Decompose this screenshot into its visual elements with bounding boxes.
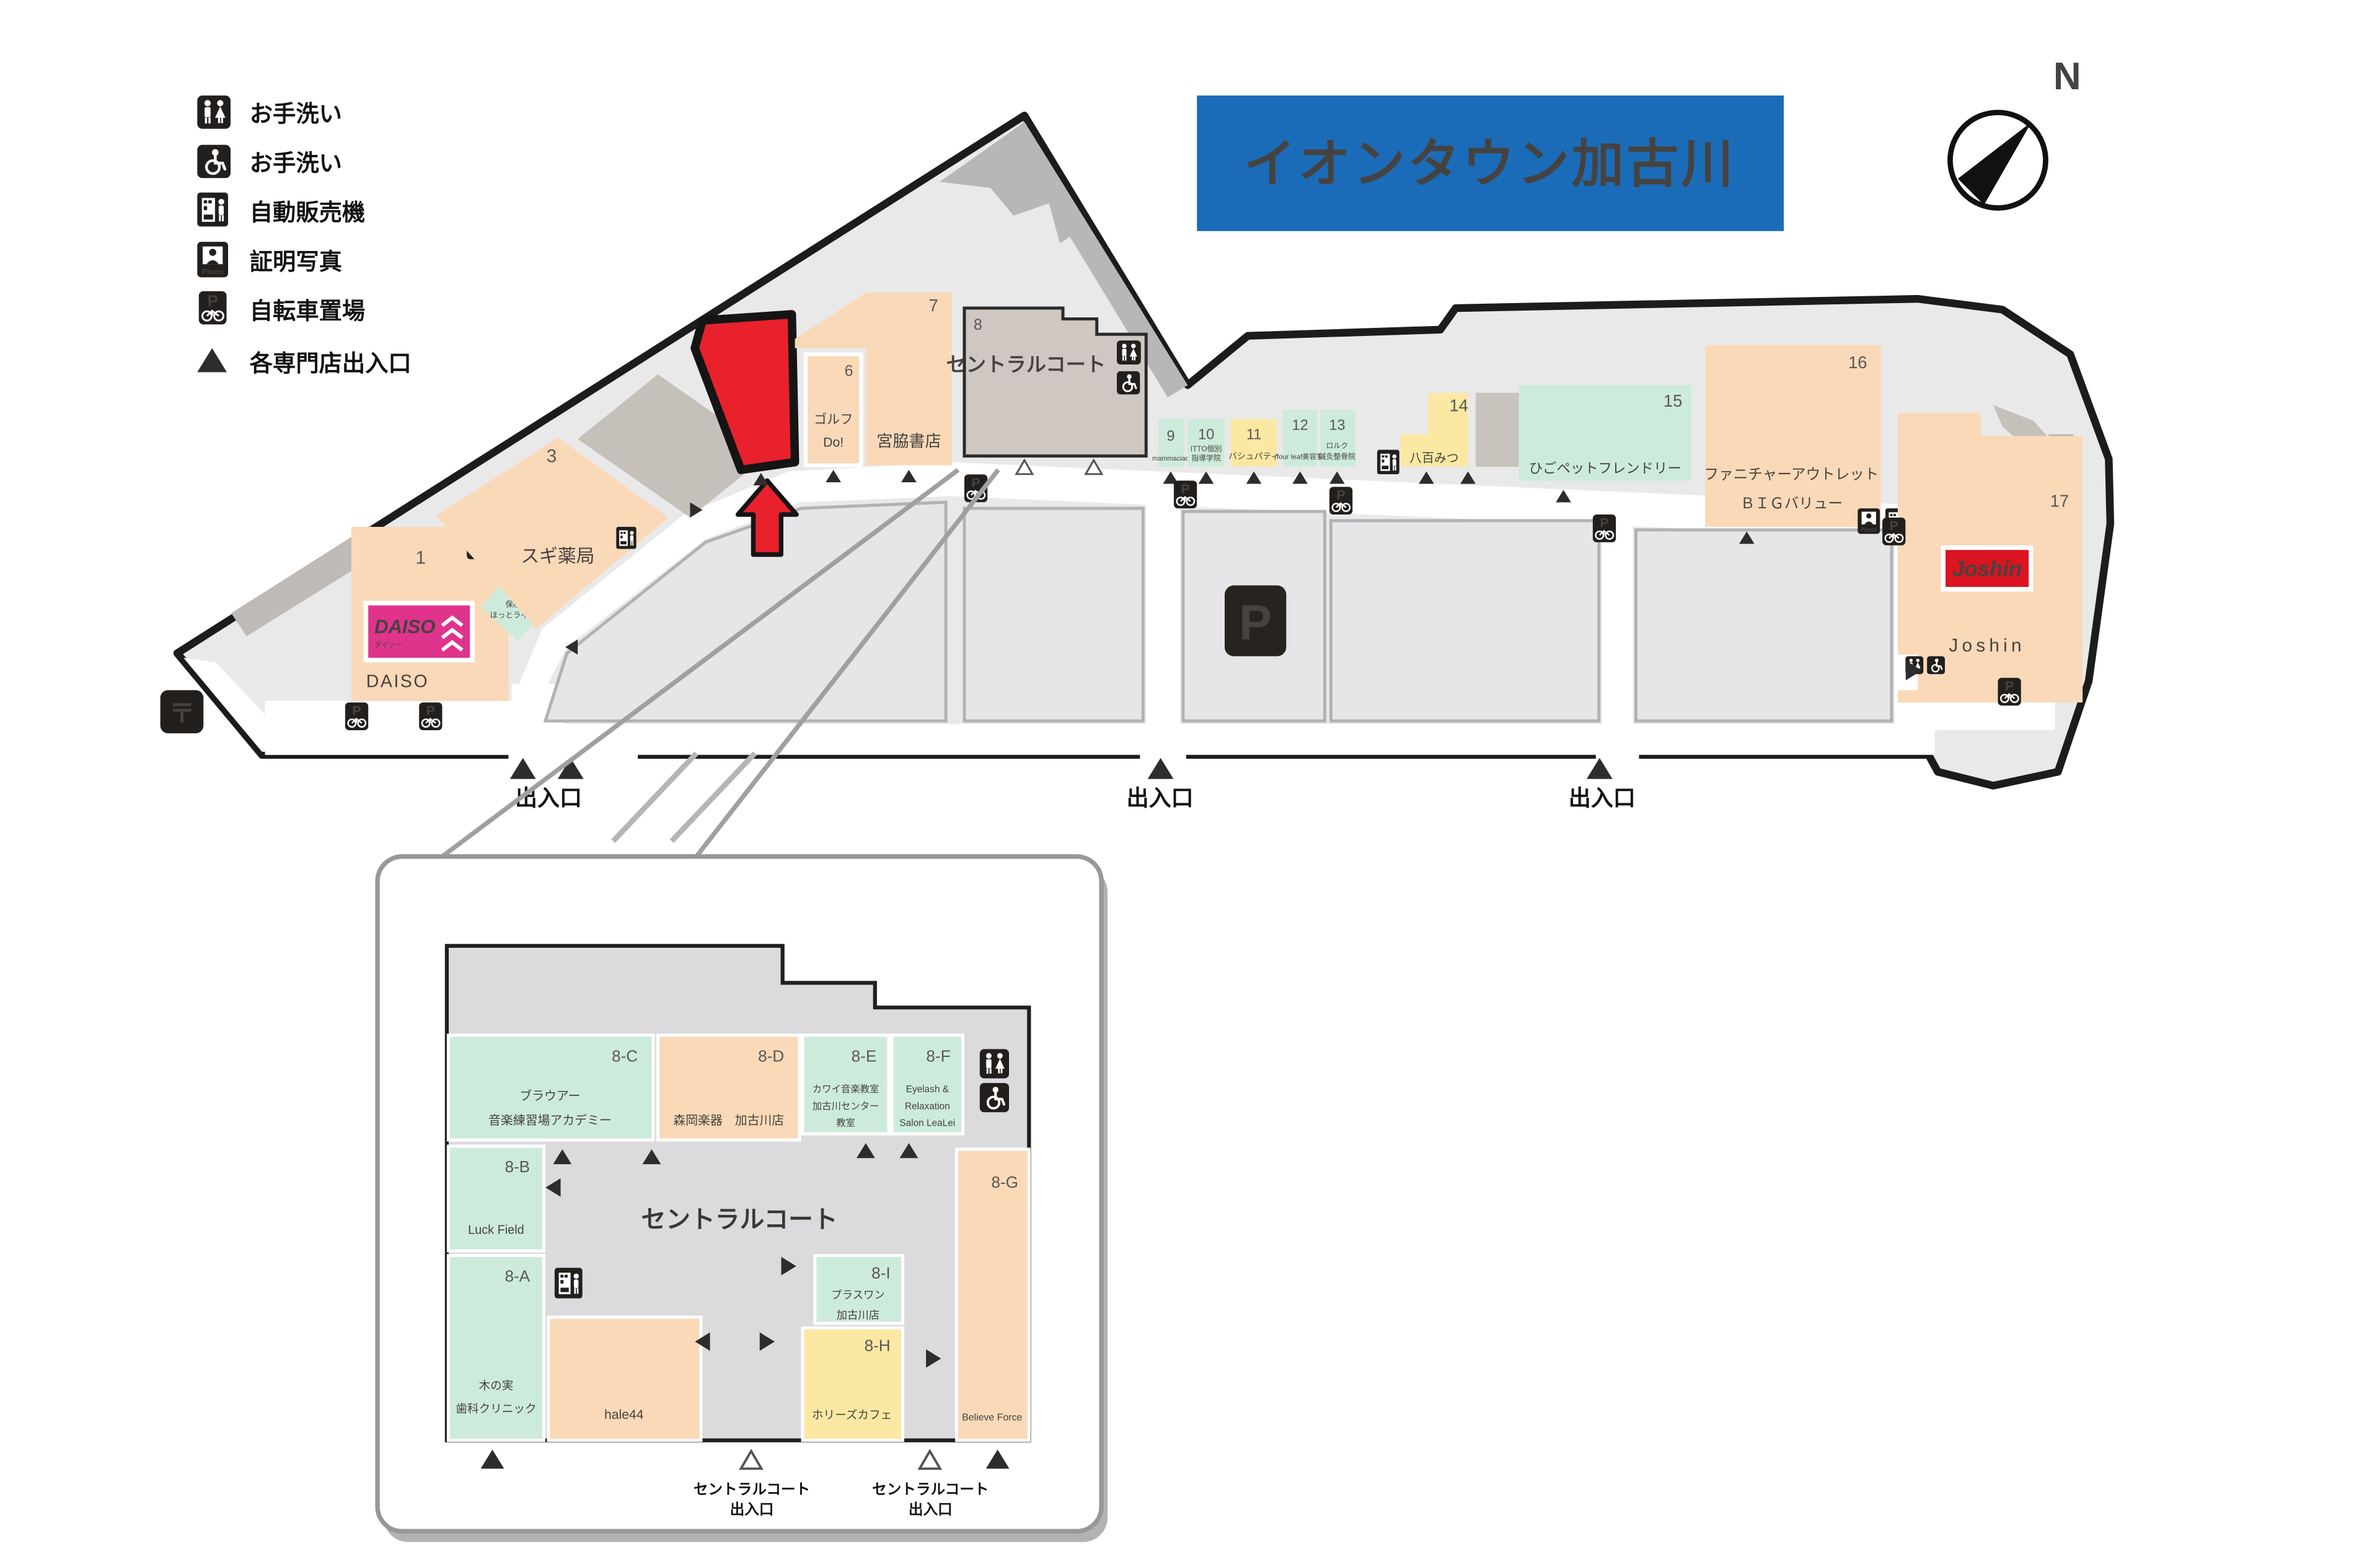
svg-text:mammaciao: mammaciao (1152, 455, 1189, 462)
daiso-logo-text: DAISO (374, 616, 435, 637)
bicycle-parking-icon (1882, 518, 1905, 545)
svg-text:指導学院: 指導学院 (1191, 454, 1221, 462)
svg-text:出入口: 出入口 (515, 785, 582, 811)
svg-text:ファニチャーアウトレット: ファニチャーアウトレット (1704, 467, 1879, 483)
store-name: DAISO (366, 671, 429, 691)
svg-text:17: 17 (2050, 492, 2069, 511)
compass: N (1950, 55, 2081, 208)
svg-text:出入口: 出入口 (730, 1501, 774, 1518)
inset-store-8e[interactable]: 8-E カワイ音楽教室 加古川センター 教室 (803, 1035, 889, 1134)
restroom-icon (980, 1049, 1009, 1078)
svg-text:カワイ音楽教室: カワイ音楽教室 (813, 1084, 879, 1095)
mall-map-page: Photo P (0, 0, 2380, 1559)
legend-label: お手洗い (250, 100, 342, 126)
store-12-fourleaf[interactable]: 12 four leaf美容室 (1277, 410, 1324, 467)
svg-text:ITTO個別: ITTO個別 (1191, 444, 1222, 453)
svg-text:8-G: 8-G (991, 1173, 1018, 1191)
walkway-joshin (1898, 699, 2055, 730)
inset-store-8h[interactable]: 8-H ホリーズカフェ (803, 1328, 903, 1440)
store-number: 8 (974, 317, 982, 333)
wheelchair-icon (980, 1083, 1009, 1112)
site-exit-west: 出入口 (510, 758, 584, 811)
svg-text:8-B: 8-B (505, 1157, 531, 1176)
store-11-bashupati[interactable]: 11 バシュパティ (1228, 419, 1280, 467)
vending-machine-icon (197, 193, 228, 227)
inset-store-8g[interactable]: 8-G Believe Force (956, 1149, 1029, 1441)
bicycle-parking-icon (345, 702, 368, 730)
svg-text:ゴルフ: ゴルフ (814, 412, 853, 426)
svg-text:8-A: 8-A (505, 1267, 531, 1286)
joshin-logo-text: Joshin (1952, 557, 2022, 581)
svg-text:音楽練習場アカデミー: 音楽練習場アカデミー (488, 1114, 612, 1128)
bicycle-parking-icon (1329, 487, 1352, 515)
inset-store-8i[interactable]: 8-I プラスワン 加古川店 (815, 1255, 903, 1323)
legend-label: 各専門店出入口 (250, 350, 412, 376)
svg-text:10: 10 (1198, 426, 1214, 443)
legend-label: 証明写真 (250, 249, 342, 275)
svg-text:Eyelash &: Eyelash & (906, 1084, 950, 1095)
svg-text:8-D: 8-D (758, 1046, 784, 1065)
svg-text:8-C: 8-C (612, 1046, 638, 1065)
store-name: セントラルコート (946, 353, 1106, 376)
page-title: イオンタウン加古川 (1243, 135, 1735, 193)
court-label: セントラルコート (641, 1206, 837, 1234)
svg-text:15: 15 (1664, 391, 1682, 410)
walkway (1146, 499, 1180, 730)
svg-text:ひごペットフレンドリー: ひごペットフレンドリー (1529, 461, 1681, 476)
central-court-inset: 8-C ブラウアー 音楽練習場アカデミー 8-D 森岡楽器 加古川店 8-E カ… (377, 857, 1108, 1542)
svg-text:ＢＩＧバリュー: ＢＩＧバリュー (1740, 496, 1843, 512)
store-name: スギ薬局 (521, 546, 594, 567)
inset-store-8d[interactable]: 8-D 森岡楽器 加古川店 (658, 1035, 800, 1140)
svg-text:鍼灸整骨院: 鍼灸整骨院 (1319, 453, 1356, 461)
svg-text:教室: 教室 (836, 1118, 855, 1129)
store-13-roruku[interactable]: 13 ロルク 鍼灸整骨院 (1319, 410, 1356, 467)
site-exit-center: 出入口 (1127, 758, 1194, 811)
restroom-icon (197, 95, 231, 129)
svg-text:木の実: 木の実 (478, 1379, 513, 1392)
photo-booth-icon (197, 242, 228, 277)
wheelchair-icon (1117, 371, 1140, 394)
svg-text:P: P (1239, 594, 1272, 650)
svg-text:八百みつ: 八百みつ (1409, 452, 1459, 466)
svg-text:出入口: 出入口 (1127, 785, 1194, 811)
daiso-logo-sub: ダイソー (374, 640, 402, 649)
wheelchair-icon (197, 145, 231, 179)
svg-text:バシュパティ: バシュパティ (1228, 451, 1280, 461)
walkway (1602, 518, 1633, 730)
svg-text:13: 13 (1329, 417, 1345, 433)
svg-text:8-H: 8-H (865, 1336, 891, 1355)
svg-text:プラスワン: プラスワン (831, 1289, 885, 1301)
svg-text:Relaxation: Relaxation (905, 1101, 950, 1111)
mall-map-canvas: Photo P (0, 0, 2380, 1559)
svg-text:ロルク: ロルク (1326, 441, 1348, 450)
svg-text:歯科クリニック: 歯科クリニック (456, 1402, 536, 1415)
svg-text:加古川店: 加古川店 (837, 1309, 880, 1321)
svg-text:9: 9 (1166, 428, 1175, 444)
store-name: Joshin (1949, 635, 2025, 656)
svg-text:出入口: 出入口 (1569, 785, 1636, 811)
inset-store-8f[interactable]: 8-F Eyelash & Relaxation Salon LeaLei (892, 1035, 963, 1134)
svg-text:8-E: 8-E (852, 1046, 877, 1065)
vending-machine-icon (555, 1268, 583, 1298)
store-number: 1 (415, 548, 426, 568)
svg-text:ホリーズカフェ: ホリーズカフェ (812, 1408, 892, 1421)
svg-text:four leaf美容室: four leaf美容室 (1277, 453, 1324, 461)
svg-text:16: 16 (1848, 353, 1867, 372)
svg-text:14: 14 (1449, 396, 1468, 415)
store-number: 6 (845, 363, 853, 379)
svg-text:出入口: 出入口 (909, 1501, 953, 1518)
svg-text:セントラルコート: セントラルコート (872, 1482, 989, 1498)
legend: お手洗い お手洗い 自動販売機 証明写真 自転車置場 各専門店出入口 (197, 95, 411, 376)
bicycle-parking-icon (1593, 515, 1616, 542)
inset-store-8c[interactable]: 8-C ブラウアー 音楽練習場アカデミー (448, 1035, 653, 1140)
store-6-golf-do[interactable]: 6 ゴルフ Do! (806, 355, 861, 466)
inset-store-8b[interactable]: 8-B Luck Field (448, 1146, 544, 1251)
legend-label: お手洗い (250, 150, 342, 176)
store-name: 宮脇書店 (876, 432, 941, 451)
store-15-higopet[interactable]: 15 ひごペットフレンドリー (1519, 385, 1691, 480)
site-exit-east: 出入口 (1569, 758, 1636, 811)
inset-store-8a[interactable]: 8-A 木の実 歯科クリニック (448, 1255, 544, 1440)
svg-text:Believe Force: Believe Force (962, 1412, 1022, 1423)
legend-label: 自動販売機 (250, 199, 365, 225)
svg-text:Luck Field: Luck Field (468, 1224, 524, 1237)
bicycle-parking-icon (199, 291, 227, 325)
legend-label: 自転車置場 (250, 298, 365, 324)
photo-booth-icon (1858, 508, 1880, 534)
entrance-triangle-icon (197, 348, 227, 373)
store-number: 7 (929, 296, 938, 315)
post-icon: 〒 (161, 690, 204, 733)
bicycle-parking-icon (419, 702, 442, 730)
svg-text:8-I: 8-I (871, 1264, 890, 1283)
bicycle-parking-icon (1174, 480, 1197, 508)
restroom-icon (1117, 340, 1141, 364)
svg-text:ブラウアー: ブラウアー (519, 1089, 580, 1103)
svg-text:森岡楽器 加古川店: 森岡楽器 加古川店 (673, 1114, 784, 1128)
svg-text:Do!: Do! (823, 436, 844, 450)
bicycle-parking-icon (1998, 678, 2021, 705)
store-10-itto[interactable]: 10 ITTO個別 指導学院 (1188, 419, 1225, 467)
svg-text:12: 12 (1292, 417, 1308, 433)
svg-text:Salon LeaLei: Salon LeaLei (899, 1118, 955, 1129)
wheelchair-icon (1927, 656, 1945, 674)
compass-north-label: N (2053, 55, 2081, 98)
svg-text:加古川センター: 加古川センター (813, 1100, 879, 1111)
parking-lots (545, 502, 1892, 721)
inset-store-hale44[interactable]: hale44 (549, 1317, 701, 1441)
vacant-unit (1476, 393, 1519, 467)
svg-text:11: 11 (1246, 426, 1262, 443)
store-number: 3 (547, 446, 557, 467)
svg-text:hale44: hale44 (604, 1408, 644, 1422)
svg-text:〒: 〒 (169, 699, 195, 728)
svg-text:セントラルコート: セントラルコート (694, 1482, 810, 1498)
main-map: P 1 DAISO ダイソー DAISO 2 保険 ほっとライン 3 スギ薬局 (161, 115, 2110, 841)
svg-text:8-F: 8-F (926, 1046, 950, 1065)
store-16-bigvalue[interactable]: 16 ファニチャーアウトレット ＢＩＧバリュー (1704, 345, 1880, 527)
vending-machine-icon (616, 527, 636, 549)
parking-icon: P (1225, 585, 1286, 656)
vending-machine-icon (1377, 450, 1399, 474)
title-banner: イオンタウン加古川 (1197, 95, 1784, 231)
